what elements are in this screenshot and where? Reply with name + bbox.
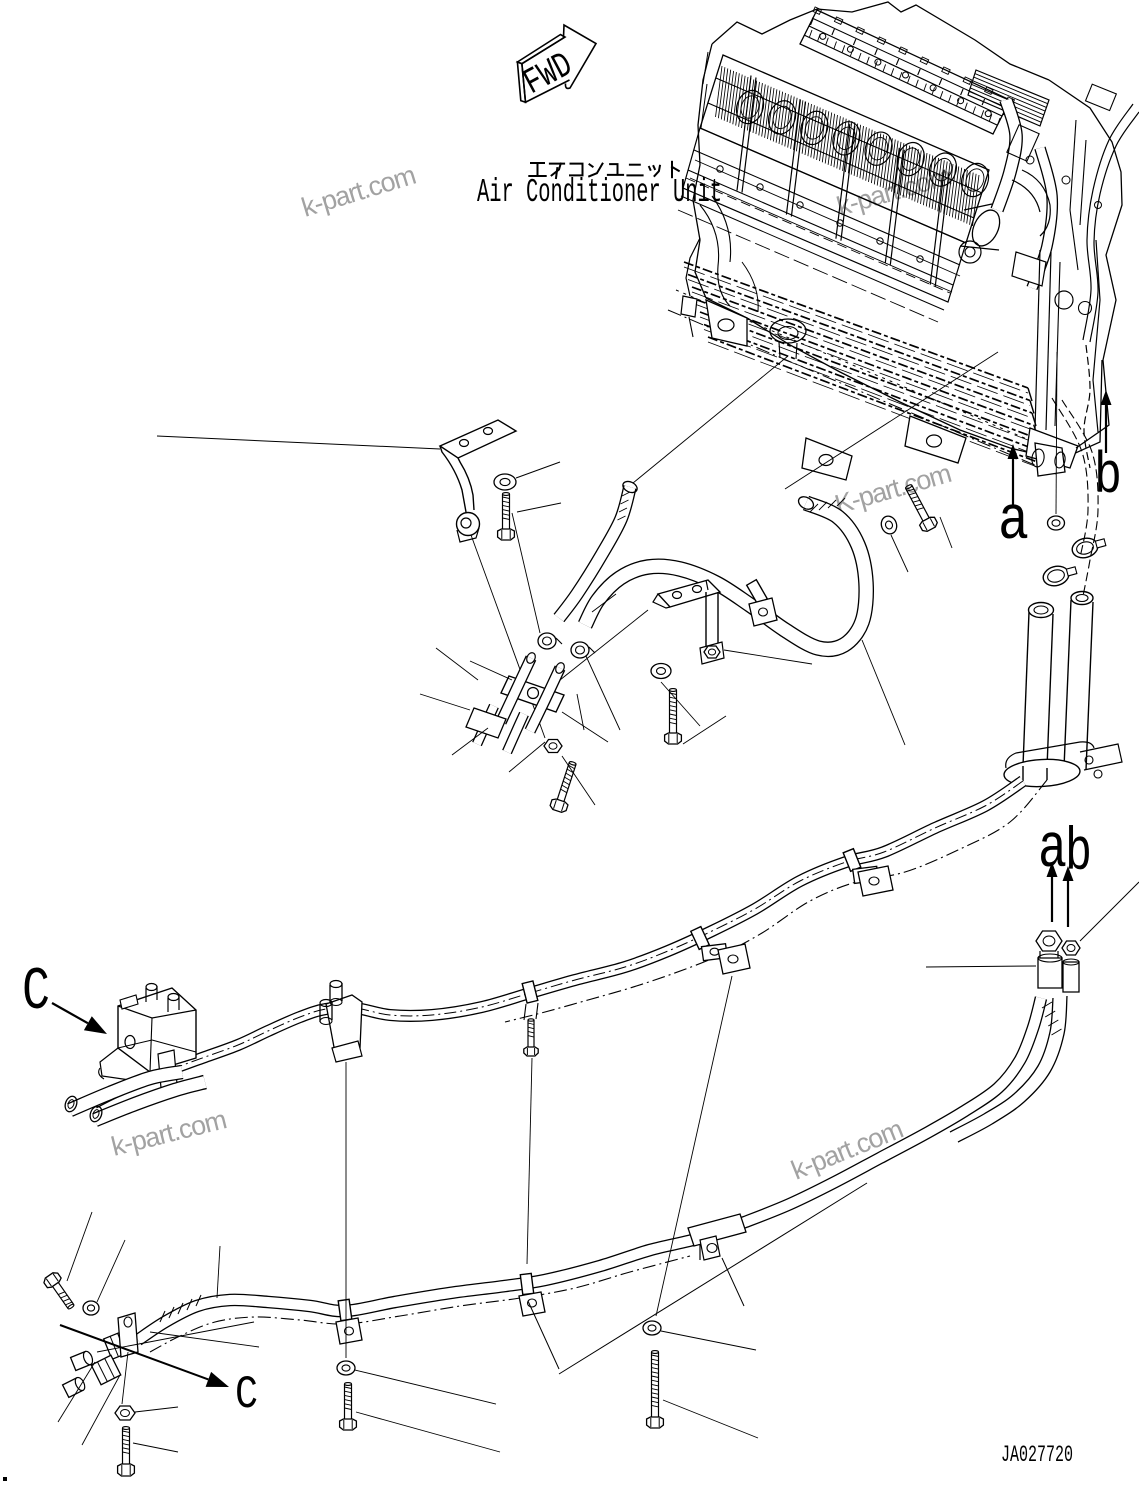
svg-text:C: C xyxy=(235,1369,258,1421)
svg-text:b: b xyxy=(1094,445,1122,510)
svg-text:C: C xyxy=(22,959,50,1027)
svg-text:JA027720: JA027720 xyxy=(1001,1442,1073,1468)
